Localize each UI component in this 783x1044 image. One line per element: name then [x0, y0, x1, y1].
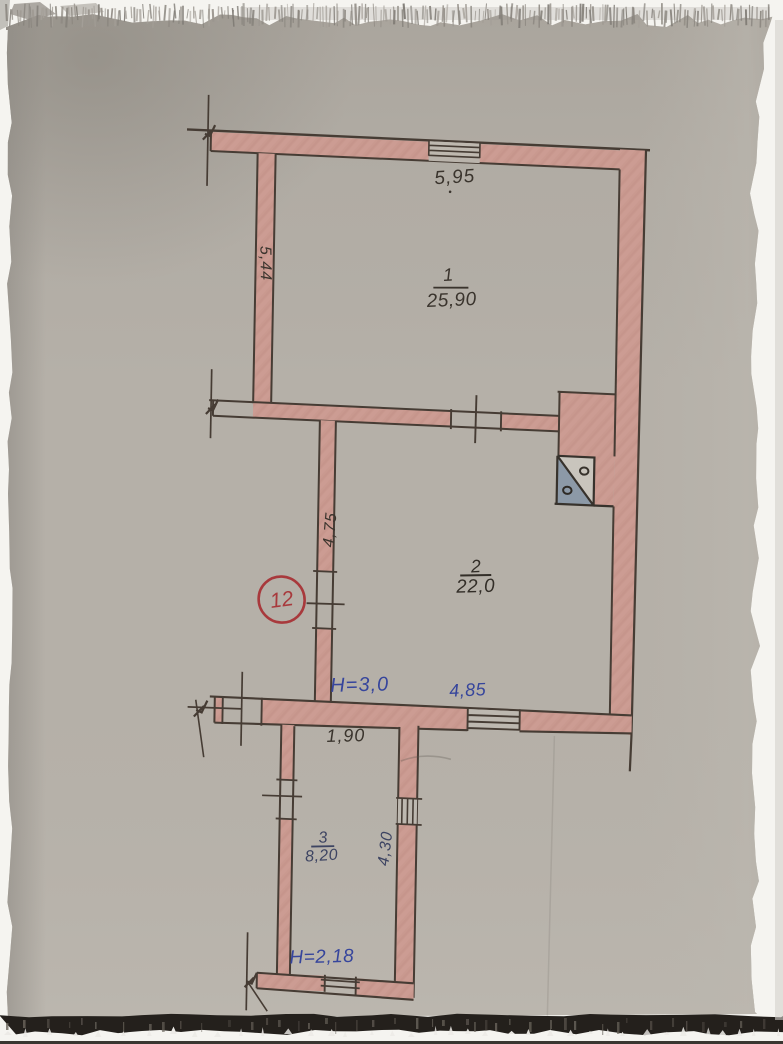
svg-text:8,20: 8,20 [304, 847, 338, 866]
svg-text:4,85: 4,85 [448, 679, 487, 701]
svg-text:12: 12 [268, 587, 295, 613]
svg-text:22,0: 22,0 [455, 576, 496, 598]
svg-text:5,95: 5,95 [433, 166, 476, 189]
svg-text:H=3,0: H=3,0 [330, 673, 390, 696]
svg-text:1: 1 [442, 265, 453, 285]
svg-text:3: 3 [318, 829, 328, 847]
svg-text:4,75: 4,75 [320, 511, 340, 548]
svg-text:2: 2 [469, 556, 481, 576]
svg-text:25,90: 25,90 [425, 289, 477, 312]
svg-text:1,90: 1,90 [326, 725, 366, 746]
svg-text:H=2,18: H=2,18 [289, 946, 355, 969]
svg-text:5,44: 5,44 [256, 246, 274, 281]
